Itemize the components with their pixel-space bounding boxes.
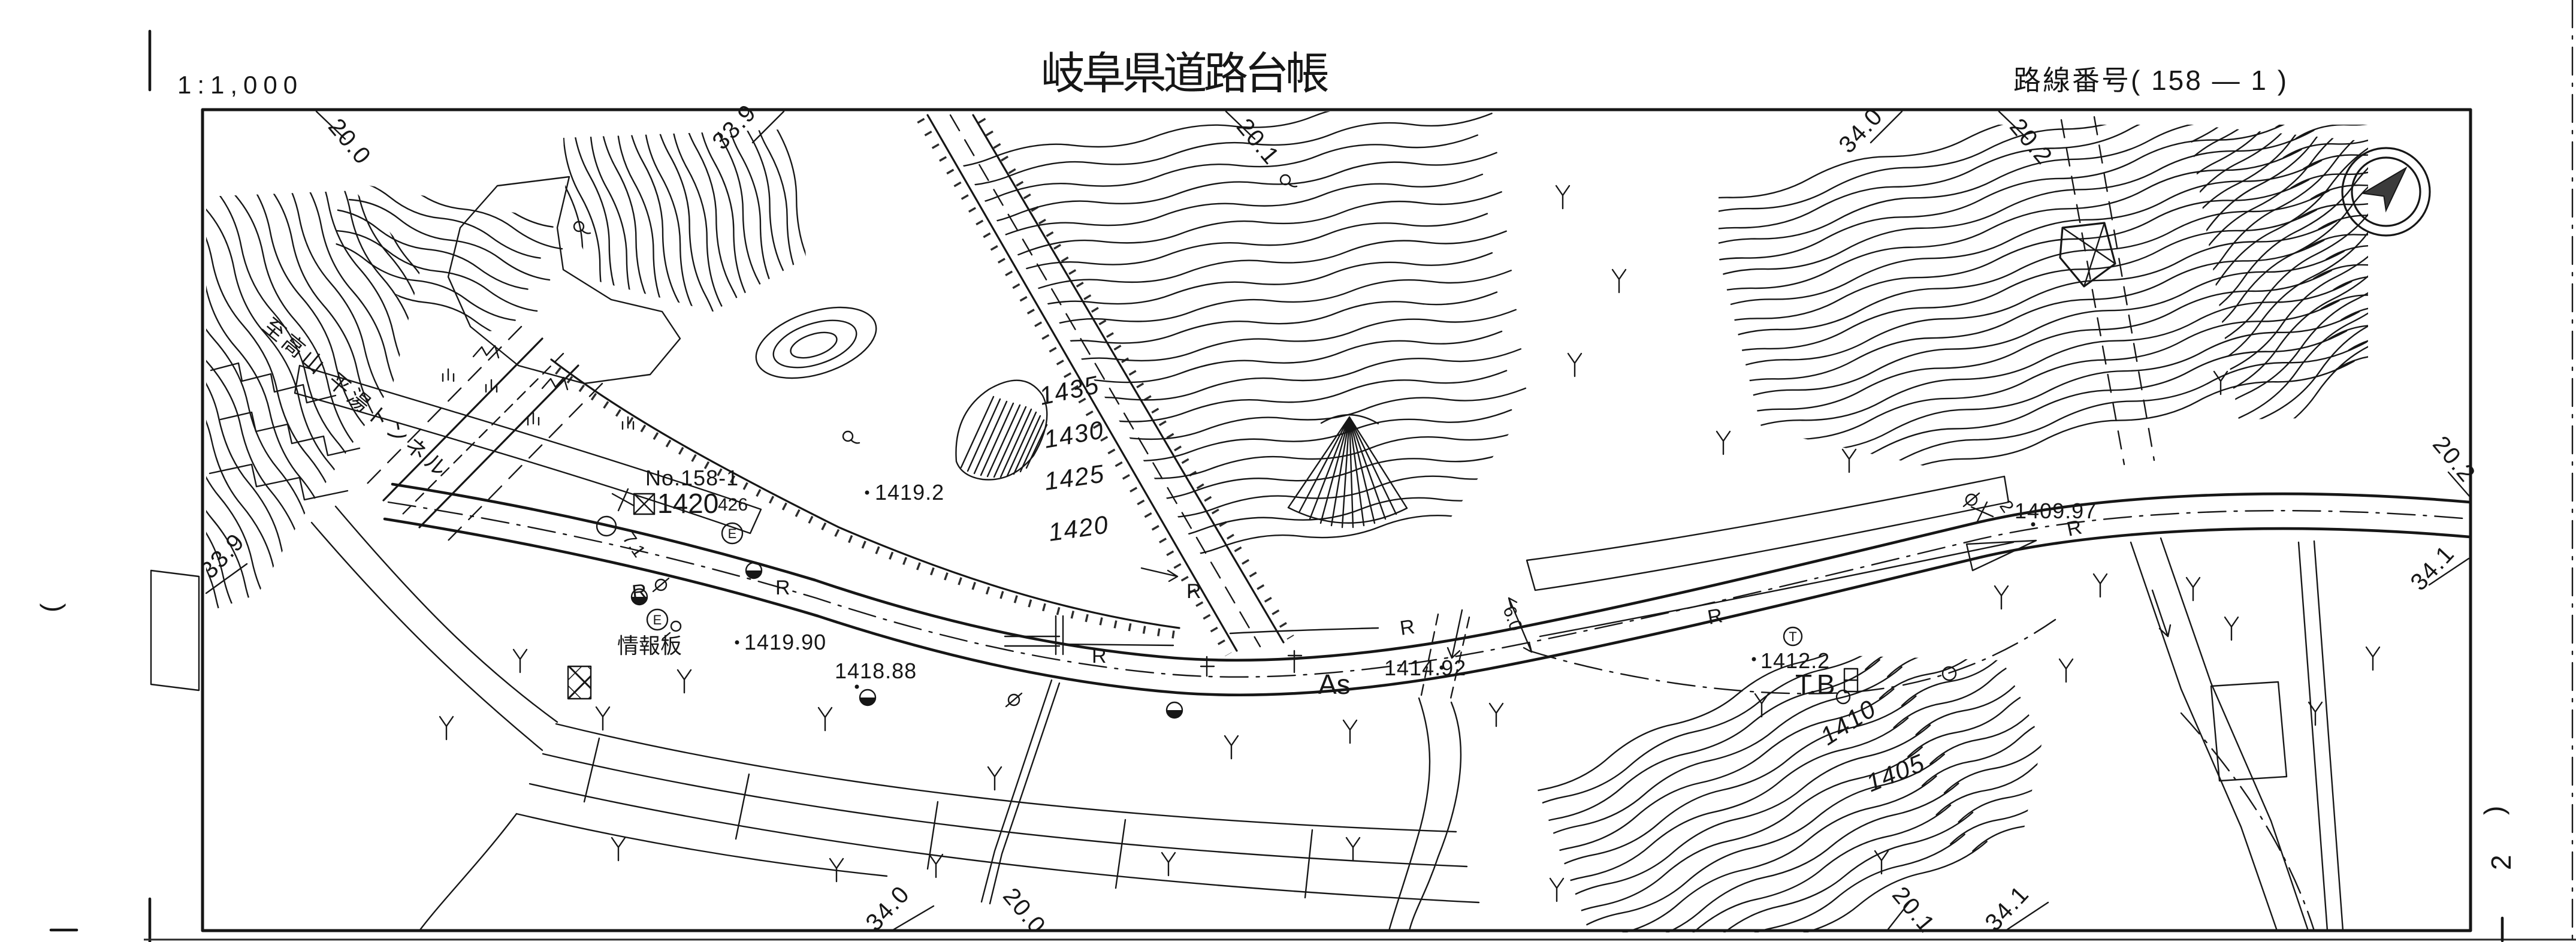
grass-icon — [443, 369, 454, 381]
dimension-labels: 7.1 6.0 2 — [612, 489, 2018, 652]
utility-pole-icon — [1964, 493, 1979, 506]
spot-1418-88: 1418.88 — [835, 659, 917, 683]
info-board-symbol — [671, 621, 681, 631]
tree-icon — [1346, 838, 1360, 861]
tree-icon — [1343, 720, 1357, 743]
tree-icon — [514, 650, 527, 672]
tree-icon — [596, 707, 609, 730]
spot-elevations: 1419.2 1419.90 1418.88 1414.92 1412.2 14… — [735, 480, 2097, 689]
tree-icon — [1225, 736, 1238, 759]
contour-label-1430: 1430 — [1041, 415, 1106, 454]
tree-icon — [1550, 878, 1563, 901]
utility-pole-icon — [1006, 693, 1022, 707]
tree-icon — [1717, 431, 1730, 454]
road-surface-letter: R — [1706, 604, 1725, 629]
building — [568, 666, 591, 699]
benchmark-icon — [1167, 702, 1182, 718]
road-surface-letter: R — [1186, 580, 1201, 603]
tree-icon — [819, 708, 832, 730]
spot-1414-92: 1414.92 — [1384, 656, 1466, 680]
tree-icon — [988, 767, 1001, 790]
tree-icon — [612, 838, 625, 861]
grid-ticks — [206, 111, 2469, 930]
contours-left-slope — [31, 108, 557, 672]
grid-label-bottom-4: 34.1 — [1980, 880, 2034, 936]
page-number-mark: 2 — [2486, 855, 2517, 870]
right-paren-mark: ) — [2478, 806, 2509, 815]
road-surface-letter: R — [1092, 645, 1107, 668]
flow-arrow — [1448, 610, 1462, 658]
tree-icon — [1755, 694, 1768, 717]
grid-label-bottom-1: 34.0 — [860, 880, 915, 936]
contour-knob — [747, 294, 885, 391]
scale-label: 1:1,000 — [177, 71, 303, 99]
spot-1419-2: 1419.2 — [875, 480, 944, 505]
tb-label: T.B — [1795, 669, 1835, 700]
grid-labels: 20.0 33.9 20.1 34.0 20.2 34.0 20.0 20.1 … — [195, 99, 2481, 939]
field-parcels — [312, 506, 1479, 931]
grid-label-top-1: 20.0 — [323, 114, 376, 170]
road-surface-letter: R — [631, 580, 648, 604]
map-canvas: 1:1,000 岐阜県道路台帳 路線番号( 158 — 1 ) ( ) 2 — [0, 0, 2576, 942]
grid-label-top-2: 33.9 — [707, 99, 762, 155]
tree-icon — [1568, 354, 1581, 376]
station-elevation-main: 1420 — [657, 488, 718, 519]
utility-pole-icon — [653, 578, 669, 591]
clearing-corridor — [920, 115, 1291, 654]
tree-icon — [1162, 853, 1175, 875]
grid-label-top-3: 20.1 — [1231, 114, 1285, 170]
road-centerline — [388, 502, 2470, 677]
road-surface-letter: R — [1399, 615, 1417, 640]
tree-icon — [2187, 578, 2200, 600]
symbol-T-icon: T — [1789, 629, 1796, 644]
tree-icon — [1995, 586, 2008, 609]
road-ledger-sheet: 1:1,000 岐阜県道路台帳 路線番号( 158 — 1 ) ( ) 2 — [0, 0, 2576, 942]
cliff-hatch-left — [956, 381, 1047, 480]
tree-icon — [2225, 617, 2238, 640]
spring-icon — [843, 431, 859, 443]
left-paren-mark: ( — [35, 603, 66, 612]
station-elevation-frac: 426 — [718, 495, 748, 515]
surface-label: As — [1318, 669, 1351, 700]
route-number-label: 路線番号( 158 — 1 ) — [2013, 65, 2288, 96]
destination-label: 至高山 平湯トンネル — [258, 313, 455, 484]
grid-label-right-1: 20.2 — [2427, 431, 2481, 488]
road-surface-letter: R — [775, 576, 790, 599]
rock-crosshatch-patches — [151, 177, 2287, 781]
tree-icon — [678, 670, 691, 693]
contours-midleft — [307, 142, 570, 346]
info-board-label: 情報板 — [617, 633, 682, 658]
cliff-hatch-knoll — [1288, 415, 1407, 527]
tree-icon — [929, 855, 943, 877]
station-158-1: No.158-1 1420 426 — [634, 466, 748, 519]
centerline-ticks — [1201, 651, 1301, 676]
header: 1:1,000 岐阜県道路台帳 路線番号( 158 — 1 ) — [177, 49, 2288, 99]
tree-icon — [2366, 647, 2379, 670]
tree-icon — [2094, 574, 2107, 597]
tree-icon — [2214, 372, 2227, 394]
symbol-E-icon: E — [728, 526, 737, 541]
stream-crossing-right — [2060, 117, 2343, 931]
road-shoulder-line — [1540, 542, 2013, 636]
contour-label-1420: 1420 — [1047, 510, 1111, 547]
page-title: 岐阜県道路台帳 — [1041, 49, 1328, 98]
spring-icon — [574, 222, 590, 233]
benchmark-icon — [746, 563, 762, 578]
map-frame — [203, 110, 2471, 931]
spot-1419-90: 1419.90 — [744, 630, 826, 654]
tree-icon — [2059, 659, 2073, 682]
tree-icon — [1490, 704, 1503, 726]
tree-icon — [1843, 449, 1856, 472]
contour-label-1425: 1425 — [1043, 459, 1107, 496]
spot-1409-97: 1409.97 — [2015, 499, 2097, 523]
grid-label-right-2: 34.1 — [2405, 540, 2460, 596]
tree-icon — [440, 717, 453, 739]
symbol-E-icon: E — [653, 612, 662, 627]
tree-icon — [1556, 186, 1569, 209]
contour-label-1435: 1435 — [1037, 370, 1102, 410]
station-number: No.158-1 — [645, 466, 739, 490]
contours-topleft-squiggle — [497, 0, 856, 485]
benchmark-icon — [860, 690, 875, 705]
tree-icon — [1612, 270, 1626, 292]
north-arrow-icon — [2342, 148, 2430, 236]
